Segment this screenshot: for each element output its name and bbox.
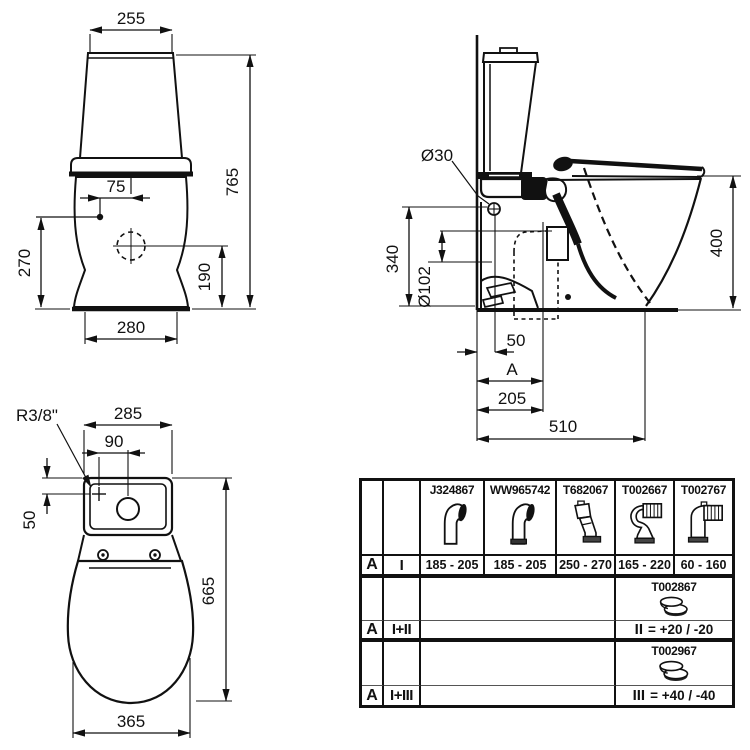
- offset-value: = +40 / -40: [650, 688, 715, 703]
- offset-connector-gasket-icon: [500, 497, 540, 547]
- row-label: A: [362, 686, 384, 705]
- part-cell: T002767: [675, 481, 732, 556]
- range-cell: 185 - 205: [485, 556, 557, 578]
- seat-outline: [68, 561, 193, 703]
- side-depth-dim: 510: [549, 417, 577, 436]
- adapter-cell: T002867: [616, 578, 732, 621]
- range-cell: 165 - 220: [616, 556, 675, 578]
- flush-button: [117, 498, 139, 520]
- offset-value-cell: II = +20 / -20: [616, 621, 732, 642]
- side-supply-wall-offset-dim: 50: [507, 331, 526, 350]
- seat-hinges: [98, 550, 160, 560]
- part-cell: T002667: [616, 481, 675, 556]
- side-rim-height-dim: 400: [707, 229, 726, 257]
- top-supply-thread-label: R3/8": [16, 406, 58, 425]
- part-code: T002967: [651, 644, 696, 658]
- side-outlet-diameter-dim: Ø102: [415, 266, 434, 308]
- table-cell-empty: [421, 642, 616, 686]
- offset-roman-label: III: [633, 687, 646, 704]
- part-code: T002867: [651, 580, 696, 594]
- range-cell: 60 - 160: [675, 556, 732, 578]
- top-seat-width-dim: 365: [117, 712, 145, 731]
- table-cell-empty: [421, 621, 616, 642]
- offset-ring-adapter-icon: [656, 594, 692, 620]
- side-rough-in-label: A: [506, 360, 518, 379]
- front-flush-height-dim: 190: [195, 263, 214, 291]
- front-supply-offset-dim: 75: [107, 177, 126, 196]
- top-view: [68, 478, 193, 703]
- table-cell-empty: [384, 642, 421, 686]
- top-total-depth-dim: 665: [199, 577, 218, 605]
- offset-value: = +20 / -20: [648, 622, 713, 637]
- table-cell-empty: [362, 642, 384, 686]
- front-base-width-dim: 280: [117, 318, 145, 337]
- side-view: [477, 35, 741, 441]
- side-supply-diameter-dim: Ø30: [421, 146, 453, 165]
- table-cell-empty: [362, 481, 384, 556]
- row-label: A: [362, 556, 384, 578]
- part-cell: WW965742: [485, 481, 557, 556]
- top-supply-edge-offset-dim: 50: [20, 511, 39, 530]
- angled-connector-icon: [566, 497, 606, 547]
- adapter-cell: T002967: [616, 642, 732, 686]
- water-supply-hole: [488, 203, 500, 215]
- range-cell: 185 - 205: [421, 556, 485, 578]
- side-rough-in-value-dim: 205: [498, 389, 526, 408]
- outlet-connector-table: J324867 WW965742 T682067 T002667: [359, 478, 735, 708]
- config-label: I+II: [384, 621, 421, 642]
- range-cell: 250 - 270: [557, 556, 616, 578]
- seat-hinge-block: [521, 177, 547, 200]
- front-supply-height-dim: 270: [15, 249, 34, 277]
- config-label: I+III: [384, 686, 421, 705]
- side-supply-height-dim: 340: [383, 245, 402, 273]
- offset-ring-adapter-icon: [656, 658, 692, 685]
- offset-roman-label: II: [635, 621, 643, 638]
- front-total-height-dim: 765: [223, 168, 242, 196]
- part-cell: T682067: [557, 481, 616, 556]
- top-supply-center-offset-dim: 90: [105, 432, 124, 451]
- offset-connector-icon: [432, 497, 472, 547]
- top-tank-width-dim: 285: [114, 404, 142, 423]
- config-label: I: [384, 556, 421, 578]
- table-cell-empty: [362, 578, 384, 621]
- part-code: T002667: [622, 483, 667, 497]
- table-cell-empty: [421, 686, 616, 705]
- part-cell: J324867: [421, 481, 485, 556]
- part-code: J324867: [430, 483, 475, 497]
- side-view-dimensions: [399, 161, 741, 441]
- flexible-elbow-connector-icon: [684, 497, 724, 547]
- part-code: T682067: [563, 483, 608, 497]
- part-code: T002767: [681, 483, 726, 497]
- flexible-s-connector-icon: [625, 497, 665, 547]
- front-tank-width-dim: 255: [117, 9, 145, 28]
- table-cell-empty: [421, 578, 616, 621]
- offset-value-cell: III = +40 / -40: [616, 686, 732, 705]
- part-code: WW965742: [490, 483, 550, 497]
- seat-lid-profile: [570, 161, 702, 169]
- table-cell-empty: [384, 578, 421, 621]
- technical-drawing-sheet: 255 75 270 190 280 765: [0, 0, 750, 750]
- row-label: A: [362, 621, 384, 642]
- table-cell-empty: [384, 481, 421, 556]
